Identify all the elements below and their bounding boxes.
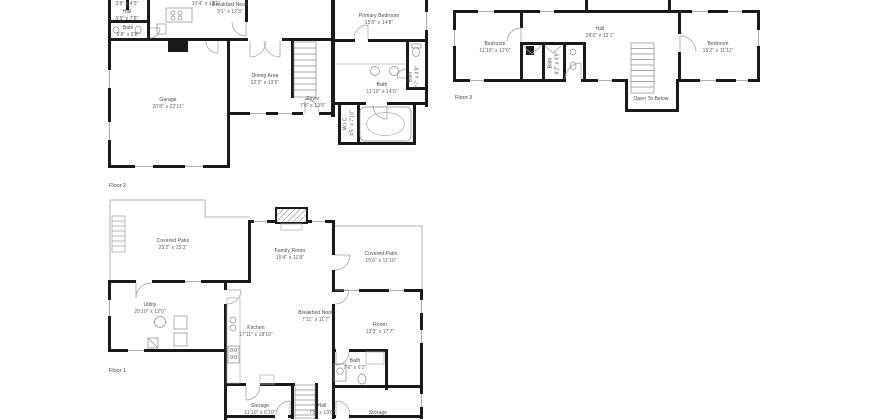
floor1-patio-stairs	[112, 216, 125, 252]
room-label-f1-room: Room13'3" x 17'7"	[366, 322, 395, 335]
room-label-f2-garage: Garage20'8" x 22'11"	[152, 97, 183, 110]
room-label-f2-foyer: Foyer7'8" x 13'5"	[300, 96, 326, 109]
room-label-f1-breakfast-nook: Breakfast Nook7'11" x 11'7"	[298, 310, 334, 323]
room-label-f2-wic: W.I.C.4'5" x 7'10"	[343, 110, 356, 136]
room-label-f1-bath: Bath7'6" x 6'2"	[344, 358, 367, 371]
floor3-plan	[453, 0, 760, 112]
floorplan-canvas: 3'8" x 4'5" Hall5'5" x 7'8" Bath5'8" x 2…	[0, 0, 870, 420]
room-label-f3-bedroom-left: Bedroom11'10" x 12'0"	[479, 41, 510, 54]
floor1-fixtures	[148, 298, 384, 384]
room-label-f2-breakfast-nook: Breakfast Nook9'1" x 12'3"	[212, 2, 248, 15]
floor1-caption: Floor 1	[109, 368, 126, 374]
room-label-f2-bath-toilet: Bath2'7" x 4'9"	[408, 66, 421, 89]
room-label-f1-covered-patio-left: Covered Patio25'2" x 15'3"	[157, 238, 190, 251]
room-label-f2-dining-area: Dining Area12'2" x 13'5"	[251, 73, 280, 86]
room-label-f1-utility: Utility20'10" x 12'0"	[134, 302, 166, 315]
floor2-caption: Floor 2	[109, 183, 126, 189]
floorplan-drawing	[0, 0, 870, 420]
room-label-f2-bath-primary: Bath11'10" x 14'0"	[366, 82, 397, 95]
room-label-f1-covered-patio-right: Covered Patio15'6" x 11'10"	[365, 251, 398, 264]
room-label-f2-bath-small: Bath5'8" x 2'8"	[117, 25, 140, 38]
room-label-f1-storage-right: Storage	[369, 410, 387, 417]
room-label-f1-kitchen: Kitchen17'11" x 18'10"	[239, 325, 273, 338]
room-label-f3-bath: Bath8'2" x 4'9"	[548, 52, 561, 75]
room-label-f1-family-room: Family Room15'4" x 11'8"	[275, 248, 306, 261]
floor3-stairs	[631, 43, 654, 93]
floor1-fireplace	[276, 208, 307, 230]
room-label-f2-primary-bedroom: Primary Bedroom15'0" x 14'8"	[359, 13, 399, 26]
room-label-f3-open-to-below: Open To Below	[633, 96, 668, 103]
floor2-doors	[150, 22, 406, 119]
floor2-stairs	[294, 42, 316, 97]
room-label-f2-closet: 3'8" x 4'5"	[116, 1, 139, 8]
room-label-f2-hall: Hall5'5" x 7'8"	[116, 9, 139, 22]
room-label-f3-hall: Hall28'0" x 12'1"	[586, 26, 615, 39]
room-label-f1-storage-left: Storage11'10" x 6'10"	[244, 403, 275, 416]
room-label-f3-bedroom-right: Bedroom15'2" x 11'11"	[703, 41, 734, 54]
floor3-caption: Floor 3	[455, 95, 472, 101]
room-label-f1-hall: Hall7'8" x 13'6"	[309, 403, 335, 416]
